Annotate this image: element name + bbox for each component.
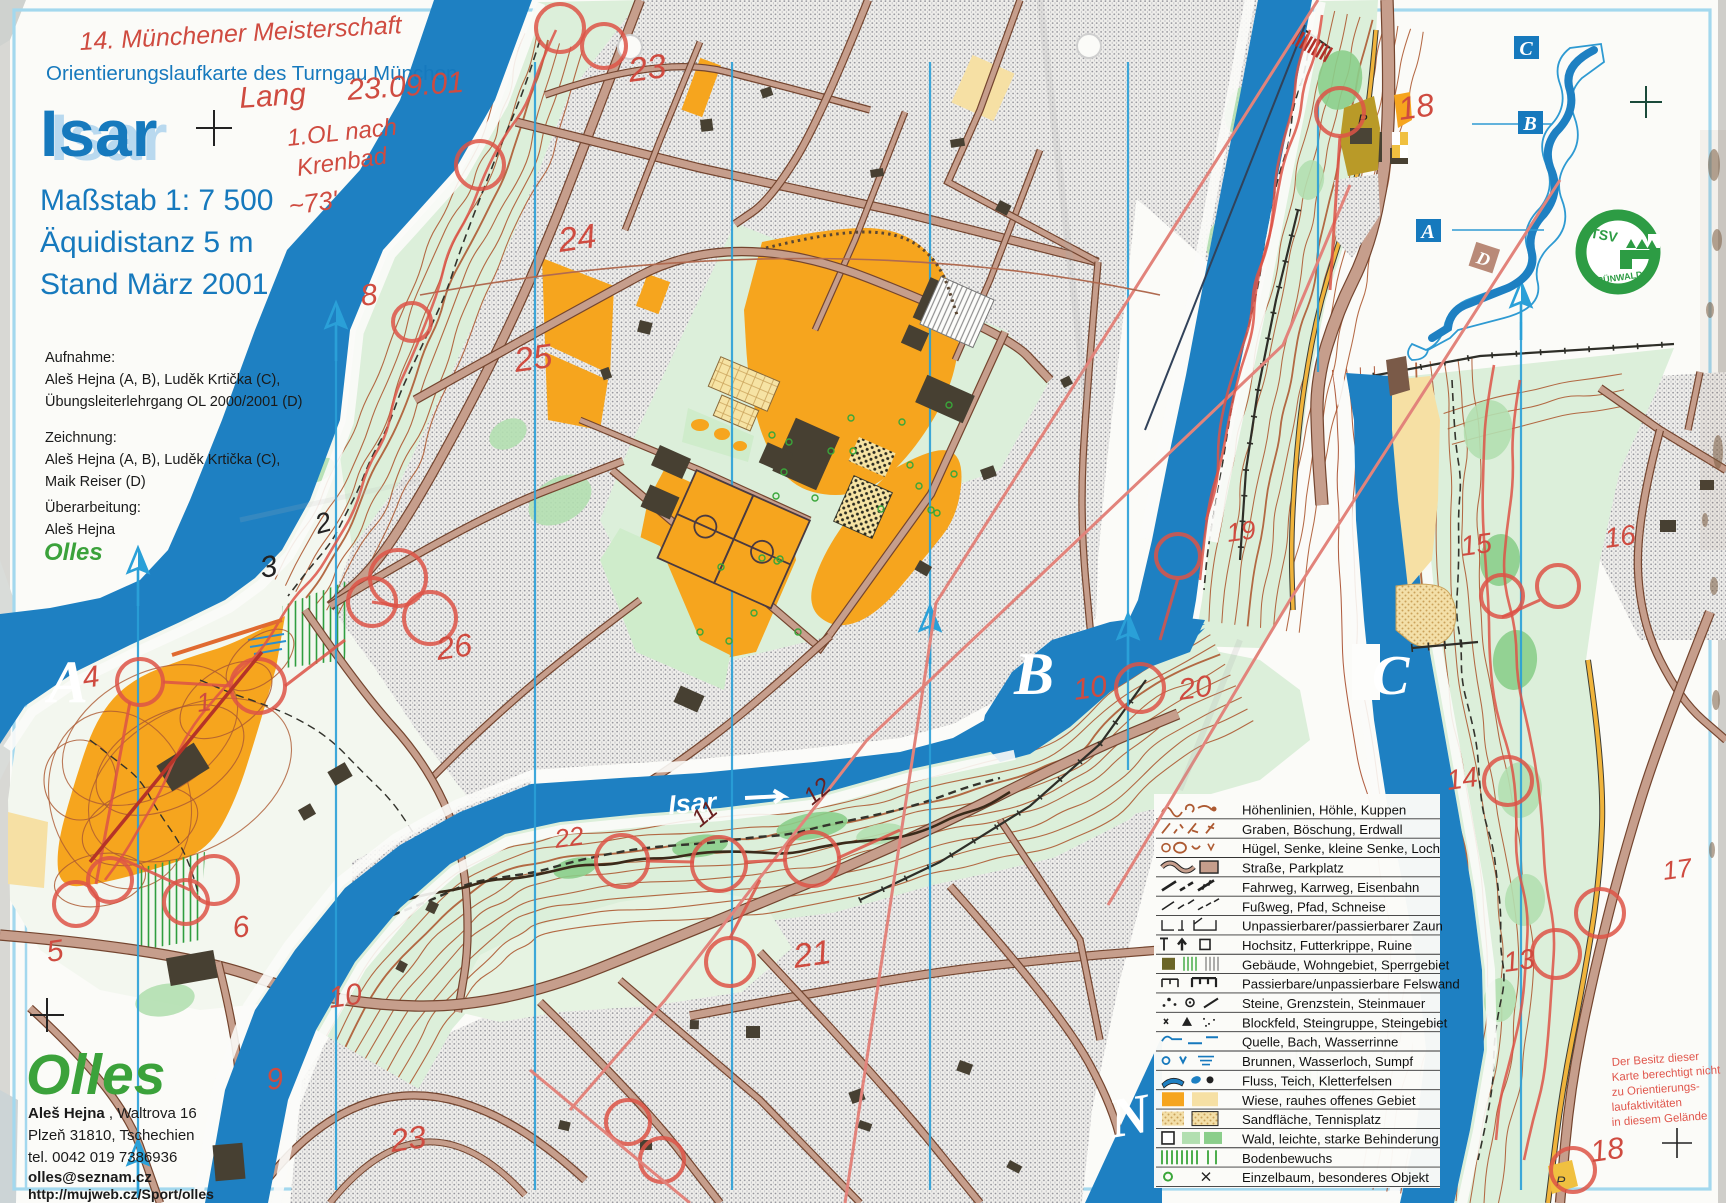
svg-text:C: C — [1372, 645, 1410, 707]
svg-text:22: 22 — [552, 820, 586, 854]
svg-text:Graben, Böschung, Erdwall: Graben, Böschung, Erdwall — [1242, 822, 1403, 837]
svg-text:http://mujweb.cz/Sport/olles: http://mujweb.cz/Sport/olles — [28, 1186, 214, 1202]
svg-text:B: B — [1013, 641, 1054, 707]
svg-text:23: 23 — [387, 1118, 428, 1159]
svg-text:Aleš Hejna (A, B), Luděk Krtič: Aleš Hejna (A, B), Luděk Krtička (C), — [45, 452, 280, 468]
svg-text:Aleš Hejna: Aleš Hejna — [45, 522, 116, 538]
svg-text:Hochsitz, Futterkrippe, Ruine: Hochsitz, Futterkrippe, Ruine — [1242, 938, 1412, 953]
svg-text:Zeichnung:: Zeichnung: — [45, 430, 117, 446]
svg-text:olles@seznam.cz: olles@seznam.cz — [28, 1169, 152, 1186]
svg-text:Fahrweg, Karrweg, Eisenbahn: Fahrweg, Karrweg, Eisenbahn — [1242, 880, 1419, 895]
svg-text:Aleš Hejna , Waltrova 16: Aleš Hejna , Waltrova 16 — [28, 1105, 197, 1122]
svg-text:Straße, Parkplatz: Straße, Parkplatz — [1242, 861, 1344, 876]
svg-text:Olles: Olles — [44, 539, 103, 566]
svg-text:21: 21 — [790, 933, 834, 976]
svg-text:Bodenbewuchs: Bodenbewuchs — [1242, 1151, 1333, 1166]
svg-text:13: 13 — [1502, 943, 1538, 978]
svg-text:Steine, Grenzstein, Steinmauer: Steine, Grenzstein, Steinmauer — [1242, 996, 1426, 1011]
svg-text:Lang: Lang — [238, 77, 307, 115]
svg-text:Blockfeld, Steingruppe, Steing: Blockfeld, Steingruppe, Steingebiet — [1242, 1015, 1448, 1030]
svg-text:Überarbeitung:: Überarbeitung: — [45, 498, 141, 516]
svg-text:24: 24 — [555, 217, 599, 260]
svg-text:Wiese, rauhes offenes Gebiet: Wiese, rauhes offenes Gebiet — [1242, 1093, 1416, 1108]
svg-text:Gebäude, Wohngebiet, Sperrgebi: Gebäude, Wohngebiet, Sperrgebiet — [1242, 957, 1450, 972]
svg-text:16: 16 — [1603, 519, 1639, 554]
svg-text:Olles: Olles — [26, 1043, 165, 1107]
svg-text:Unpassierbarer/passierbarer Za: Unpassierbarer/passierbarer Zaun — [1242, 919, 1443, 934]
svg-text:Einzelbaum, besonderes Objekt: Einzelbaum, besonderes Objekt — [1242, 1170, 1429, 1185]
svg-text:18: 18 — [1588, 1132, 1626, 1169]
svg-text:25: 25 — [511, 337, 555, 380]
svg-text:Hügel, Senke, kleine Senke, Lo: Hügel, Senke, kleine Senke, Loch — [1242, 841, 1440, 856]
svg-text:Stand März 2001: Stand März 2001 — [40, 268, 268, 301]
svg-text:10: 10 — [326, 978, 364, 1015]
svg-text:17: 17 — [1661, 852, 1695, 886]
svg-text:20: 20 — [1175, 670, 1214, 708]
svg-text:Übungsleiterlehrgang OL 2000/2: Übungsleiterlehrgang OL 2000/2001 (D) — [45, 392, 302, 410]
svg-text:Brunnen, Wasserloch, Sumpf: Brunnen, Wasserloch, Sumpf — [1242, 1054, 1413, 1069]
svg-text:Fußweg, Pfad, Schneise: Fußweg, Pfad, Schneise — [1242, 899, 1386, 914]
svg-text:Passierbare/unpassierbare Fels: Passierbare/unpassierbare Felswand — [1242, 977, 1460, 992]
svg-text:A: A — [1419, 221, 1434, 243]
svg-text:B: B — [1522, 113, 1536, 135]
svg-text:Wald, leichte, starke Behinder: Wald, leichte, starke Behinderung — [1242, 1131, 1439, 1146]
svg-text:Plzeň 31810, Tschechien: Plzeň 31810, Tschechien — [28, 1127, 195, 1144]
svg-text:10: 10 — [1071, 670, 1109, 707]
svg-text:23: 23 — [625, 47, 669, 90]
svg-text:26: 26 — [433, 626, 474, 667]
svg-text:18: 18 — [1396, 86, 1436, 127]
svg-text:Isar: Isar — [40, 96, 157, 170]
svg-text:Maik Reiser (D): Maik Reiser (D) — [45, 474, 146, 490]
svg-text:Quelle, Bach, Wasserrinne: Quelle, Bach, Wasserrinne — [1242, 1035, 1398, 1050]
svg-text:14: 14 — [1445, 761, 1480, 796]
svg-text:15: 15 — [1459, 527, 1495, 562]
svg-text:Höhenlinien, Höhle, Kuppen: Höhenlinien, Höhle, Kuppen — [1242, 803, 1406, 818]
svg-text:Sandfläche, Tennisplatz: Sandfläche, Tennisplatz — [1242, 1112, 1381, 1127]
svg-text:tel. 0042 019 7386936: tel. 0042 019 7386936 — [28, 1149, 177, 1166]
svg-text:A: A — [44, 649, 88, 715]
svg-text:Aufnahme:: Aufnahme: — [45, 350, 115, 366]
svg-text:C: C — [1519, 38, 1533, 60]
svg-text:Maßstab 1: 7 500: Maßstab 1: 7 500 — [40, 184, 273, 217]
svg-text:Äquidistanz 5 m: Äquidistanz 5 m — [40, 226, 253, 259]
svg-text:Fluss, Teich, Kletterfelsen: Fluss, Teich, Kletterfelsen — [1242, 1073, 1392, 1088]
svg-text:Aleš Hejna (A, B), Luděk Krtič: Aleš Hejna (A, B), Luděk Krtička (C), — [45, 372, 280, 388]
svg-text:19: 19 — [1225, 514, 1258, 548]
